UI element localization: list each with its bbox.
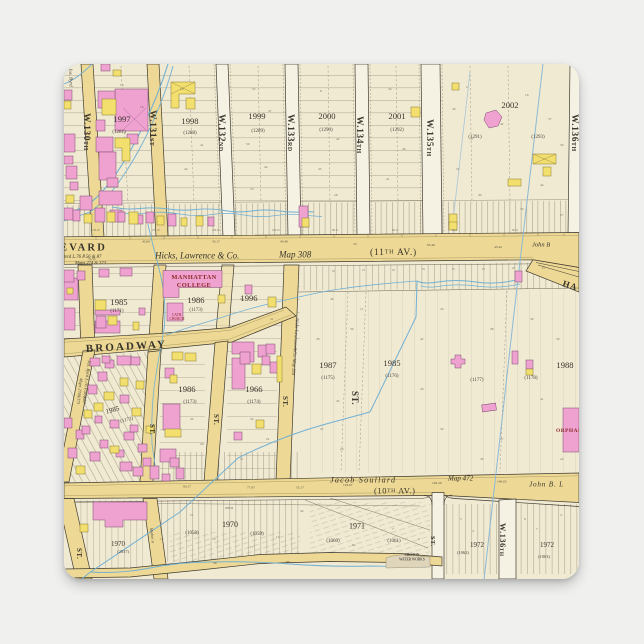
svg-text:52: 52 bbox=[240, 297, 244, 301]
svg-text:64: 64 bbox=[352, 543, 356, 547]
svg-text:18: 18 bbox=[140, 105, 144, 109]
svg-text:4: 4 bbox=[472, 529, 474, 533]
svg-text:99.11: 99.11 bbox=[512, 229, 519, 232]
svg-text:47: 47 bbox=[470, 137, 474, 141]
svg-text:44: 44 bbox=[264, 165, 268, 169]
svg-text:(1178): (1178) bbox=[524, 376, 537, 381]
svg-text:27: 27 bbox=[560, 213, 564, 217]
svg-text:55.17: 55.17 bbox=[296, 486, 304, 490]
svg-text:40: 40 bbox=[420, 387, 424, 391]
svg-text:1997: 1997 bbox=[113, 114, 131, 124]
svg-text:40: 40 bbox=[452, 107, 456, 111]
svg-text:44: 44 bbox=[184, 167, 188, 171]
svg-text:47: 47 bbox=[268, 109, 272, 113]
svg-text:1987: 1987 bbox=[319, 360, 337, 370]
svg-text:36.90: 36.90 bbox=[88, 257, 96, 261]
svg-text:John B. L: John B. L bbox=[529, 481, 564, 489]
svg-text:39: 39 bbox=[350, 327, 354, 331]
svg-text:Hicks, Lawrence & Co.: Hicks, Lawrence & Co. bbox=[154, 251, 239, 261]
svg-text:36: 36 bbox=[480, 457, 484, 461]
svg-text:ORPHAN: ORPHAN bbox=[556, 428, 582, 434]
svg-text:34: 34 bbox=[388, 87, 392, 91]
svg-text:1999: 1999 bbox=[248, 111, 265, 121]
svg-text:(1290): (1290) bbox=[319, 128, 333, 133]
svg-text:8: 8 bbox=[320, 89, 322, 93]
svg-text:43: 43 bbox=[440, 307, 444, 311]
svg-text:26: 26 bbox=[200, 442, 204, 446]
svg-text:42: 42 bbox=[336, 137, 340, 141]
svg-text:(1281): (1281) bbox=[112, 130, 126, 135]
svg-text:CROTON: CROTON bbox=[405, 553, 420, 557]
svg-text:34: 34 bbox=[250, 417, 254, 421]
svg-text:42: 42 bbox=[420, 337, 424, 341]
svg-text:28: 28 bbox=[316, 337, 320, 341]
svg-text:102.29: 102.29 bbox=[432, 481, 442, 485]
svg-text:ST.: ST. bbox=[75, 548, 83, 559]
svg-text:(1062): (1062) bbox=[457, 550, 469, 555]
svg-text:43.60: 43.60 bbox=[142, 240, 150, 244]
svg-text:8: 8 bbox=[524, 517, 526, 521]
svg-text:(1292): (1292) bbox=[390, 128, 404, 133]
svg-text:34: 34 bbox=[440, 427, 444, 431]
svg-text:44: 44 bbox=[300, 509, 304, 513]
svg-text:74: 74 bbox=[353, 242, 357, 246]
svg-text:50: 50 bbox=[246, 142, 250, 146]
svg-text:5: 5 bbox=[460, 517, 462, 521]
svg-text:Map 472: Map 472 bbox=[447, 475, 474, 483]
svg-text:100.10: 100.10 bbox=[212, 229, 220, 232]
svg-text:ST.: ST. bbox=[212, 414, 220, 425]
svg-text:470.8: 470.8 bbox=[225, 506, 233, 510]
svg-text:14: 14 bbox=[276, 535, 280, 539]
svg-text:ST.: ST. bbox=[429, 536, 436, 547]
svg-text:(11TH AV.): (11TH AV.) bbox=[370, 247, 417, 258]
svg-text:CHURCH: CHURCH bbox=[170, 317, 185, 321]
svg-text:COLLEGE: COLLEGE bbox=[177, 282, 211, 289]
svg-text:11: 11 bbox=[360, 307, 364, 311]
svg-text:1998: 1998 bbox=[181, 116, 198, 126]
svg-text:99.11: 99.11 bbox=[332, 229, 339, 232]
svg-text:1988: 1988 bbox=[556, 360, 573, 370]
svg-text:4: 4 bbox=[560, 513, 562, 517]
svg-text:(1063): (1063) bbox=[538, 554, 550, 559]
svg-text:96: 96 bbox=[286, 560, 290, 564]
svg-text:1985: 1985 bbox=[383, 358, 400, 368]
svg-text:28: 28 bbox=[334, 193, 338, 197]
svg-text:43.42: 43.42 bbox=[494, 245, 502, 249]
svg-text:1966: 1966 bbox=[245, 384, 263, 394]
svg-text:(1060): (1060) bbox=[326, 539, 340, 544]
svg-text:41: 41 bbox=[386, 177, 390, 181]
svg-text:21: 21 bbox=[190, 513, 194, 517]
svg-text:52: 52 bbox=[252, 87, 256, 91]
svg-text:25: 25 bbox=[250, 187, 254, 191]
svg-text:10: 10 bbox=[180, 87, 184, 91]
svg-text:45: 45 bbox=[336, 399, 340, 403]
svg-text:45.17: 45.17 bbox=[212, 240, 220, 244]
svg-text:39: 39 bbox=[556, 337, 560, 341]
svg-text:MANHATTAN: MANHATTAN bbox=[171, 274, 216, 281]
svg-text:90.17: 90.17 bbox=[183, 485, 191, 489]
svg-text:16: 16 bbox=[525, 93, 529, 97]
svg-text:WATER WORKS: WATER WORKS bbox=[399, 558, 425, 562]
svg-text:ST.: ST. bbox=[281, 396, 289, 407]
svg-text:19: 19 bbox=[212, 537, 216, 541]
svg-text:31: 31 bbox=[240, 457, 244, 461]
svg-text:43.40: 43.40 bbox=[280, 240, 288, 244]
svg-text:ST.: ST. bbox=[350, 391, 360, 405]
svg-text:EVARD: EVARD bbox=[60, 243, 107, 254]
svg-text:77.97: 77.97 bbox=[247, 486, 255, 490]
svg-text:2000: 2000 bbox=[318, 111, 335, 121]
svg-text:38: 38 bbox=[490, 327, 494, 331]
svg-text:45: 45 bbox=[318, 167, 322, 171]
svg-text:(1173): (1173) bbox=[183, 400, 196, 405]
svg-text:(1289): (1289) bbox=[251, 129, 265, 134]
svg-text:ST.: ST. bbox=[148, 424, 156, 435]
svg-text:(1175): (1175) bbox=[321, 376, 334, 381]
svg-text:39: 39 bbox=[560, 143, 564, 147]
svg-text:47: 47 bbox=[320, 427, 324, 431]
svg-text:105.10: 105.10 bbox=[152, 229, 160, 232]
svg-text:16: 16 bbox=[120, 83, 124, 87]
svg-text:41: 41 bbox=[540, 397, 544, 401]
svg-text:65.40: 65.40 bbox=[427, 243, 435, 247]
svg-text:41: 41 bbox=[200, 143, 204, 147]
svg-text:26: 26 bbox=[340, 447, 344, 451]
svg-text:2: 2 bbox=[466, 85, 468, 89]
svg-text:(1059): (1059) bbox=[250, 532, 264, 537]
svg-text:24: 24 bbox=[560, 457, 564, 461]
svg-text:1970: 1970 bbox=[111, 540, 126, 548]
svg-text:86.2: 86.2 bbox=[452, 229, 457, 232]
svg-text:(1174): (1174) bbox=[247, 400, 260, 405]
svg-text:7: 7 bbox=[536, 527, 538, 531]
svg-text:140.65: 140.65 bbox=[497, 480, 507, 484]
svg-text:22: 22 bbox=[266, 437, 270, 441]
svg-text:7: 7 bbox=[392, 527, 394, 531]
svg-text:1985: 1985 bbox=[110, 297, 127, 307]
svg-text:1972: 1972 bbox=[470, 541, 485, 549]
svg-text:John B: John B bbox=[532, 242, 550, 249]
svg-text:52: 52 bbox=[456, 167, 460, 171]
svg-text:37: 37 bbox=[500, 437, 504, 441]
svg-text:59: 59 bbox=[213, 561, 217, 565]
svg-text:1970: 1970 bbox=[222, 520, 238, 529]
svg-text:119.67: 119.67 bbox=[343, 483, 353, 487]
svg-text:30: 30 bbox=[520, 207, 524, 211]
svg-text:(1177): (1177) bbox=[470, 378, 483, 383]
svg-text:190.10: 190.10 bbox=[92, 229, 100, 232]
svg-text:12: 12 bbox=[160, 537, 164, 541]
svg-text:(1293): (1293) bbox=[531, 135, 545, 140]
svg-text:9: 9 bbox=[418, 537, 420, 541]
svg-text:(1171): (1171) bbox=[110, 309, 123, 314]
svg-text:42: 42 bbox=[500, 122, 504, 126]
svg-text:44: 44 bbox=[540, 183, 544, 187]
svg-text:42: 42 bbox=[190, 417, 194, 421]
svg-text:(1288): (1288) bbox=[183, 131, 197, 136]
svg-text:46: 46 bbox=[402, 147, 406, 151]
svg-text:41: 41 bbox=[270, 317, 274, 321]
svg-text:36: 36 bbox=[530, 317, 534, 321]
svg-text:44: 44 bbox=[330, 297, 334, 301]
svg-text:(1058): (1058) bbox=[185, 531, 199, 536]
svg-text:100.10: 100.10 bbox=[272, 229, 280, 232]
svg-text:Jos. Byrd: Jos. Byrd bbox=[67, 68, 73, 87]
svg-text:(1173): (1173) bbox=[189, 308, 202, 313]
svg-text:1972: 1972 bbox=[540, 541, 555, 549]
svg-text:1971: 1971 bbox=[349, 522, 365, 531]
svg-text:1986: 1986 bbox=[187, 295, 205, 305]
svg-text:Map 308: Map 308 bbox=[278, 250, 312, 260]
svg-text:Jacob Soullard: Jacob Soullard bbox=[330, 476, 396, 485]
svg-text:2001: 2001 bbox=[388, 111, 405, 121]
svg-text:(1176): (1176) bbox=[385, 374, 398, 379]
svg-text:40: 40 bbox=[478, 193, 482, 197]
svg-text:17: 17 bbox=[250, 545, 254, 549]
svg-text:37: 37 bbox=[548, 117, 552, 121]
svg-text:2002: 2002 bbox=[501, 100, 518, 110]
svg-text:1986: 1986 bbox=[178, 384, 196, 394]
svg-text:(2037): (2037) bbox=[117, 549, 129, 554]
svg-text:(1061): (1061) bbox=[387, 539, 401, 544]
svg-text:99.11: 99.11 bbox=[392, 229, 399, 232]
